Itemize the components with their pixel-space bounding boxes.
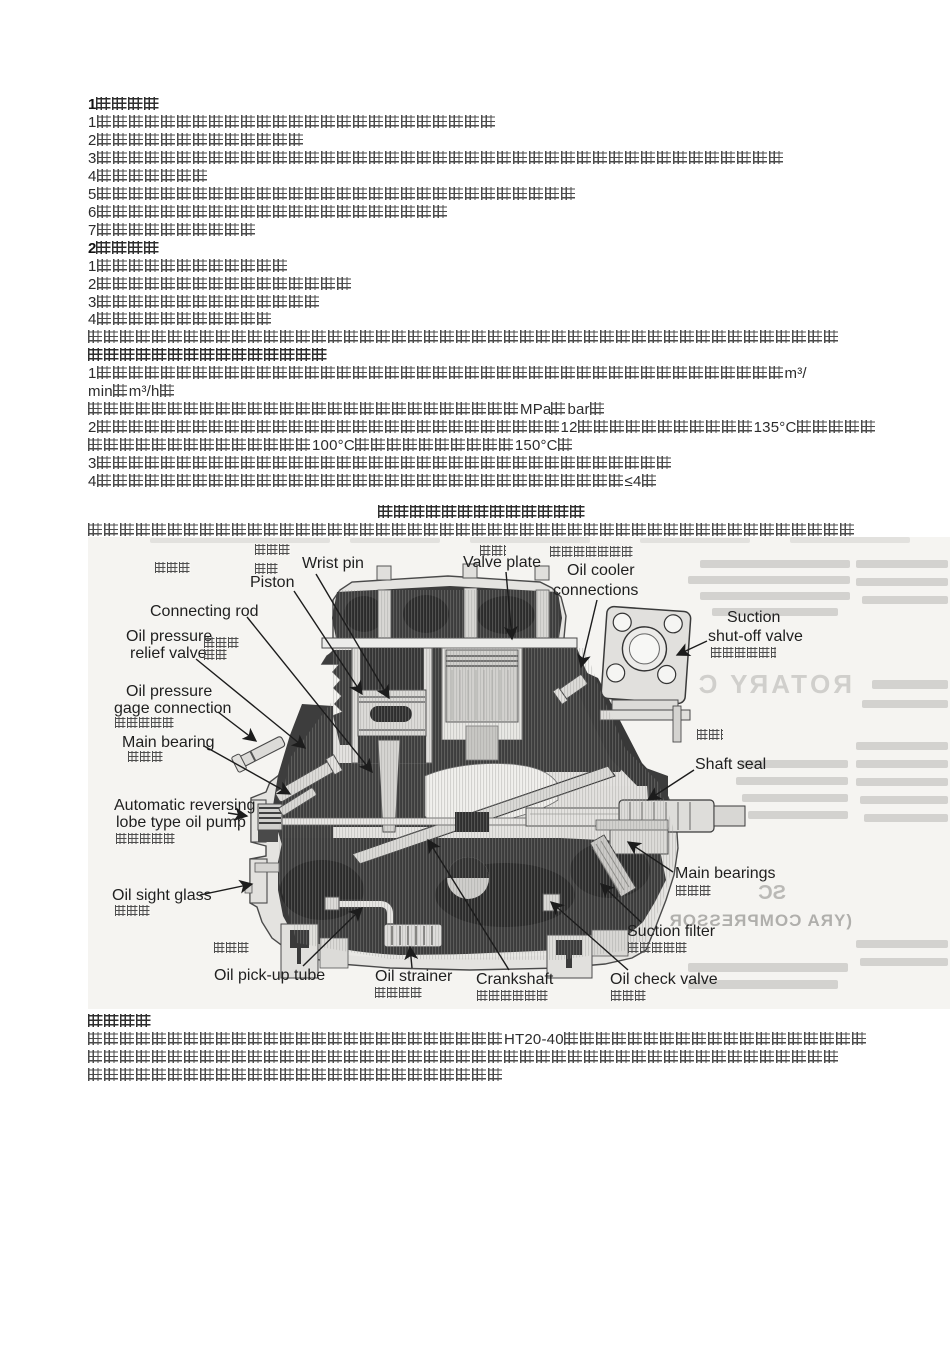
- svg-text:SC: SC: [758, 882, 786, 904]
- svg-text:ROTARY C: ROTARY C: [696, 669, 852, 699]
